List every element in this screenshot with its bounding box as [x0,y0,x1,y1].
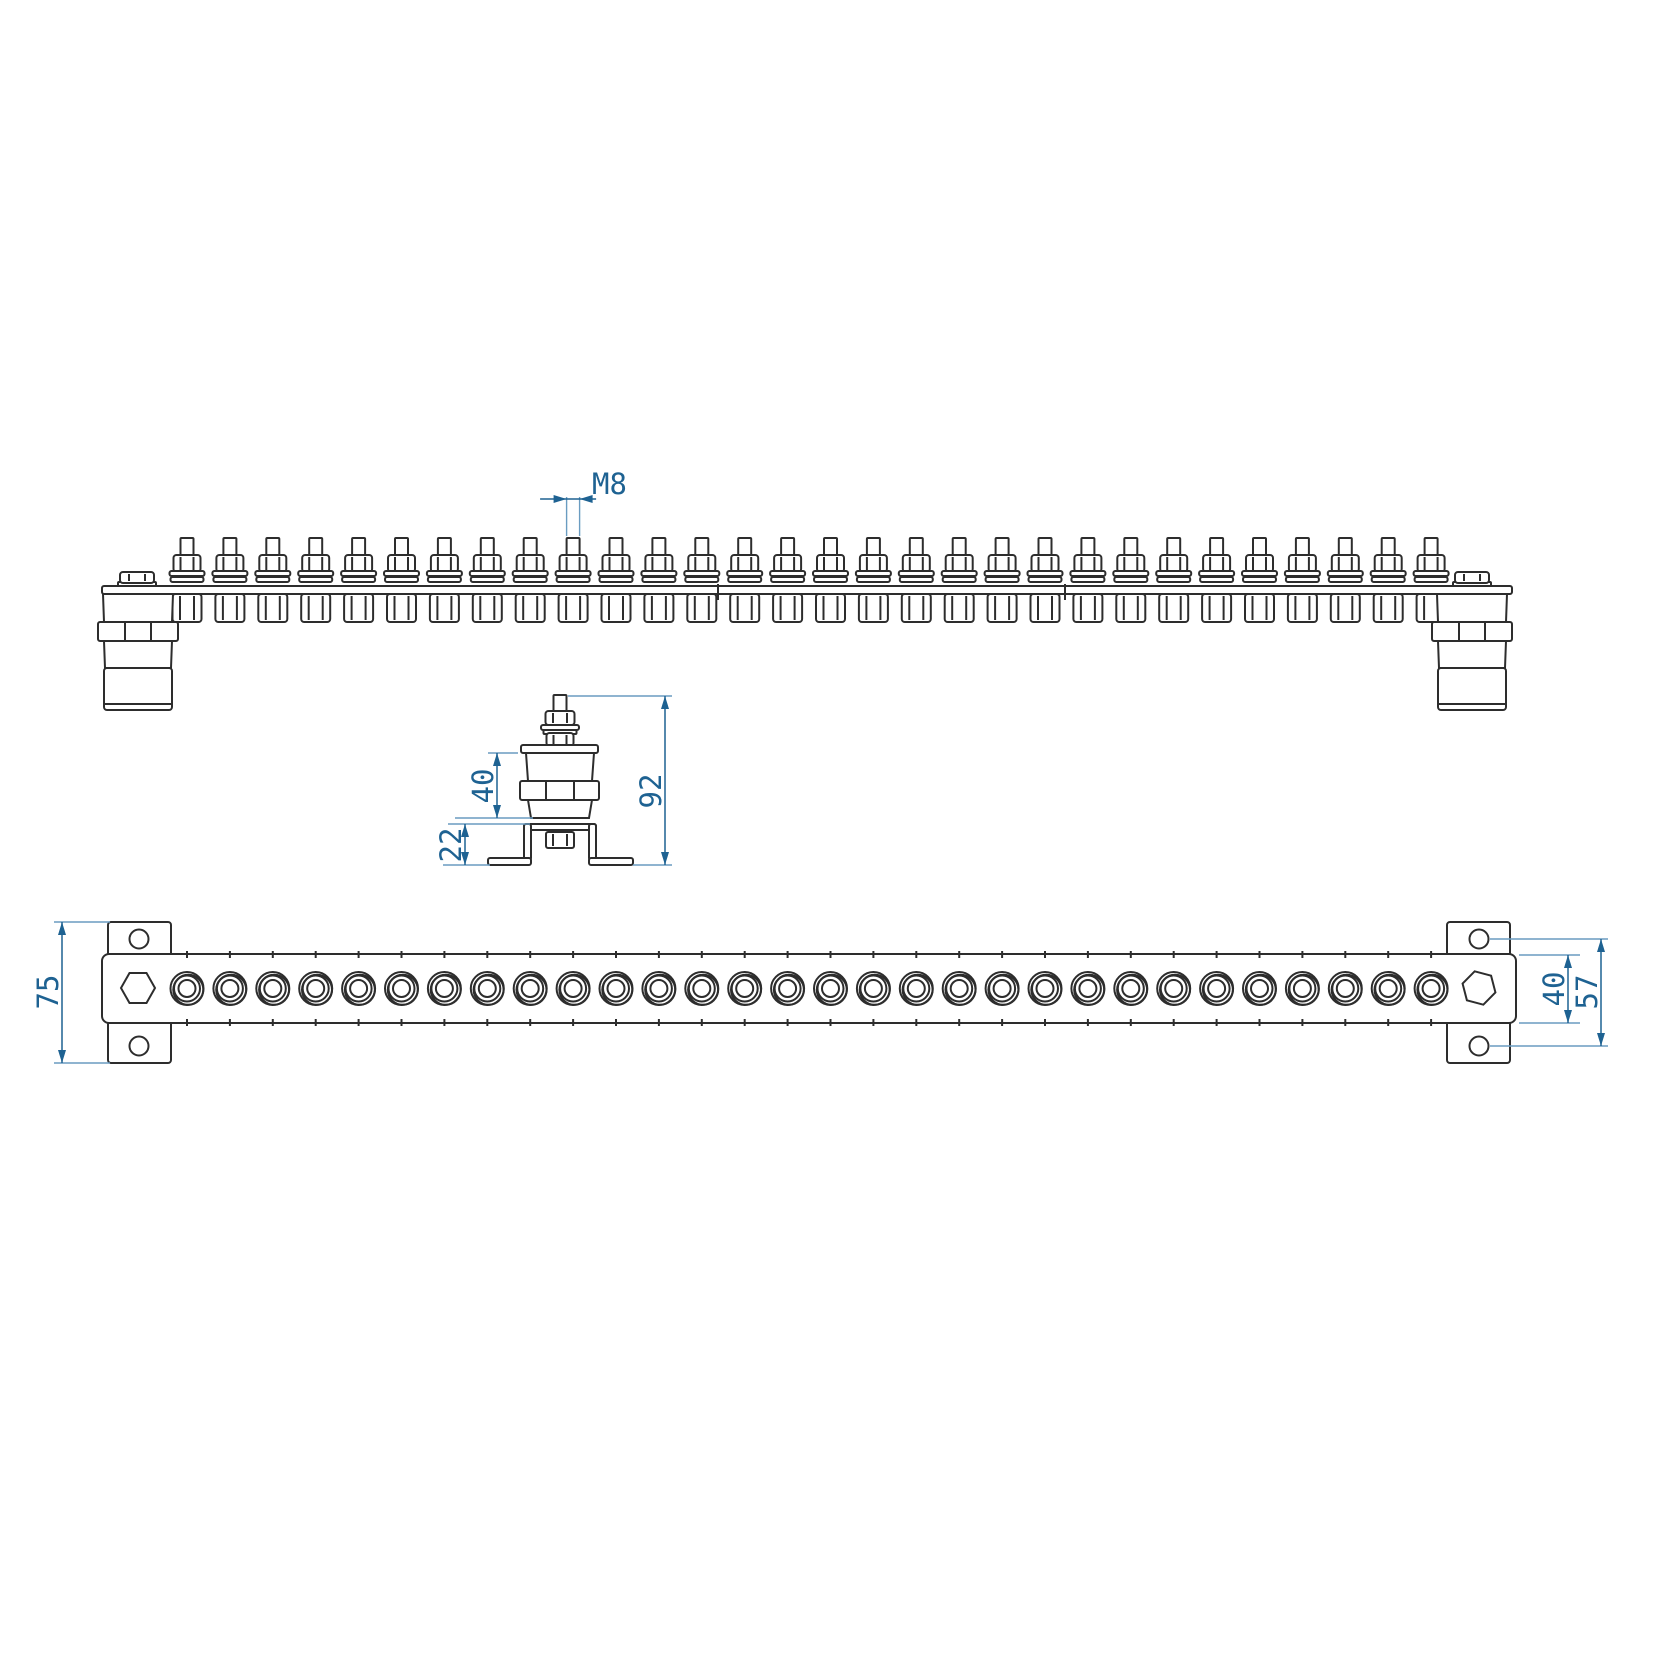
stud-washer [557,577,590,582]
stud-washer [1199,571,1234,576]
stud-lower-nut [387,594,416,622]
dim-label-thread: M8 [592,467,627,501]
bracket-foot [589,858,633,865]
stud-lower-nut [730,594,759,622]
insulator-upper-body [1437,594,1507,622]
insulator-upper-body [526,753,594,781]
stud-lower-nut [1031,594,1060,622]
stud-washer [857,577,890,582]
stud-washer [856,571,891,576]
stud-lower-nut [602,594,631,622]
dim-label-bar-width: 40 [1537,972,1571,1007]
stud-lower-nut [816,594,845,622]
terminal-stud [899,538,934,622]
end-bolt [118,572,156,586]
stud-hex-nut [817,555,844,572]
dim-label-insulator-height: 40 [466,769,500,804]
stud-hex-nut [517,555,544,572]
stud-washer [384,571,419,576]
stud-washer [1328,571,1363,576]
bracket-wall [524,824,531,860]
detail-view [488,695,633,865]
stud-washer [255,571,290,576]
dimension-arrow [1564,1010,1572,1023]
end-bolt [1453,572,1491,586]
stud-washer [1414,571,1449,576]
terminal-stud [727,538,762,622]
stud-washer [1329,577,1362,582]
terminal-stud [1199,538,1234,622]
stud-washer [556,571,591,576]
stud-hex-nut [388,555,415,572]
stud-lower-nut [430,594,459,622]
insulator-band [98,622,178,641]
terminal-stud [985,538,1020,622]
stud-hex-nut [174,555,201,572]
stud-washer [171,577,204,582]
insulator-band [1432,622,1512,641]
stud-hex-nut [946,555,973,572]
bolt-head [120,572,154,583]
stud-washer [599,571,634,576]
stud-washer [256,577,289,582]
standoff-insulator [1432,594,1512,710]
dimension-arrow [1564,955,1572,968]
terminal-stud [1156,538,1191,622]
dimension-arrow [493,753,501,766]
insulator-upper-body [103,594,173,622]
stud-washer [1028,571,1063,576]
stud-hex-nut [302,555,329,572]
stud-hex-nut [474,555,501,572]
stud-washer [727,571,762,576]
bracket-wall [589,824,596,860]
stud-washer [770,571,805,576]
stud-lower-nut [1374,594,1403,622]
dimension-arrow [58,922,66,935]
busbar-front [102,586,1512,594]
dimension-arrow [661,852,669,865]
terminal-stud [427,538,462,622]
stud-washer [1114,577,1147,582]
terminal-stud [1371,538,1406,622]
stud-hex-nut [1246,555,1273,572]
stud-washer [298,571,333,576]
stud-washer [342,577,375,582]
stud-washer [427,571,462,576]
insulator-lower-body [104,641,172,668]
dim-label-bracket-plate-height: 75 [31,975,65,1010]
stud-hex-nut [216,555,243,572]
stud-hex-nut [1117,555,1144,572]
dim-thread [540,495,596,536]
stud-hex-nut [731,555,758,572]
stud-hex-nut [1332,555,1359,572]
stud-washer [385,577,418,582]
technical-drawing: M8 40 22 92 75 40 57 [0,0,1655,1656]
stud-lower-nut [644,594,673,622]
stud-washer [986,577,1019,582]
dimension-arrow [1597,939,1605,952]
stud-lower-nut [215,594,244,622]
stud-washer [985,571,1020,576]
stud-lower-nut [1331,594,1360,622]
insulator-lower-body [528,800,592,818]
stud-washer [642,577,675,582]
stud-washer [1371,571,1406,576]
stud-lower-nut [988,594,1017,622]
stud-washer [600,577,633,582]
stud-lower-nut [1245,594,1274,622]
terminal-stud [1113,538,1148,622]
stud-hex-nut [560,555,587,572]
terminal-stud [641,538,676,622]
stud-lower-nut [1159,594,1188,622]
terminal-stud [856,538,891,622]
stud-washer [514,577,547,582]
stud-lower-nut [1073,594,1102,622]
terminal-stud [684,538,719,622]
stud-hex-nut [860,555,887,572]
dim-label-overall-height: 92 [634,774,668,809]
stud-lower-nut [945,594,974,622]
stud-washer [471,577,504,582]
stud-washer [1242,571,1277,576]
dimension-arrow [580,495,593,503]
insulator-top-plate [521,745,598,753]
stud-washer [1243,577,1276,582]
stud-hex-nut [688,555,715,572]
stud-hex-nut [1203,555,1230,572]
stud-lower-nut [773,594,802,622]
insulator-band [520,781,599,800]
stud-lower-nut [258,594,287,622]
stud-hex-nut [259,555,286,572]
terminal-stud [1285,538,1320,622]
stud-washer [1372,577,1405,582]
terminal-stud [513,538,548,622]
terminal-stud [384,538,419,622]
bracket-flange [524,824,596,830]
stud-lower-nut [902,594,931,622]
stud-hex-nut [645,555,672,572]
stud-washer [943,577,976,582]
terminal-stud [341,538,376,622]
terminal-stud [470,538,505,622]
stud-washer [685,577,718,582]
stud-washer [1157,577,1190,582]
stud-lower-nut [1202,594,1231,622]
stud-hex-nut [989,555,1016,572]
stud-lower-nut [1116,594,1145,622]
stud-washer [771,577,804,582]
terminal-stud [170,538,205,622]
stud-washer [1070,571,1105,576]
terminal-stud [1070,538,1105,622]
terminal-stud [813,538,848,622]
stud-lower-nut [173,594,202,622]
terminal-stud [556,538,591,622]
stud-hex-nut [345,555,372,572]
stud-washer [513,571,548,576]
stud-washer [641,571,676,576]
dimension-arrow [554,495,567,503]
bolt-head [1455,572,1489,583]
stud-washer [684,571,719,576]
terminal-stud [1242,538,1277,622]
stud-lower-nut [559,594,588,622]
stud-washer [813,571,848,576]
stud-hex-nut [1160,555,1187,572]
terminal-stud [1328,538,1363,622]
stud-washer [900,577,933,582]
stud-lower-nut [301,594,330,622]
terminal-stud [599,538,634,622]
stud-hex-nut [1375,555,1402,572]
terminal-stud [212,538,247,622]
dimension-arrow [58,1050,66,1063]
stud-hex-nut [903,555,930,572]
stud-washer [728,577,761,582]
stud-lower-nut [473,594,502,622]
stud-lower-nut [1288,594,1317,622]
stud-washer [1200,577,1233,582]
stud-lower-nut [859,594,888,622]
stud-hex-nut [1289,555,1316,572]
busbar-plan [102,954,1516,1023]
stud-washer [299,577,332,582]
dimension-arrow [493,805,501,818]
stud-washer [1285,571,1320,576]
terminal-stud [942,538,977,622]
terminal-stud [1028,538,1063,622]
stud-washer [341,571,376,576]
stud-hex-nut [1074,555,1101,572]
stud-washer [1071,577,1104,582]
stud-hex-nut [774,555,801,572]
stud-washer [212,571,247,576]
stud-washer [1029,577,1062,582]
stud-lower-nut [344,594,373,622]
stud-hex-nut [546,711,575,725]
stud-washer [1156,571,1191,576]
standoff-insulator [98,594,178,710]
stud-hex-nut [1418,555,1445,572]
front-view [98,538,1512,710]
insulator-lower-body [1438,641,1506,668]
stud-hex-nut [603,555,630,572]
stud-lower-nut [516,594,545,622]
end-bolt-hex-head [121,973,155,1003]
drawing-canvas: M8 40 22 92 75 40 57 [0,0,1655,1656]
stud-washer [814,577,847,582]
plan-view [102,922,1516,1063]
stud-washer [470,571,505,576]
bracket-foot [488,858,531,865]
stud-washer [899,571,934,576]
dim-label-hole-spacing: 57 [1570,975,1604,1010]
stud-hex-nut [1032,555,1059,572]
terminal-stud [770,538,805,622]
stud-lower-nut [687,594,716,622]
stud-washer [428,577,461,582]
stud-washer [942,571,977,576]
stud-washer [170,571,205,576]
stud-washer [1286,577,1319,582]
dimension-arrow [661,696,669,709]
terminal-stud [298,538,333,622]
bracket-nut [546,832,574,848]
dimension-arrow [1597,1033,1605,1046]
stud-washer [1415,577,1448,582]
stud-hex-nut [431,555,458,572]
stud-washer [213,577,246,582]
stud-washer [1113,571,1148,576]
terminal-stud [255,538,290,622]
